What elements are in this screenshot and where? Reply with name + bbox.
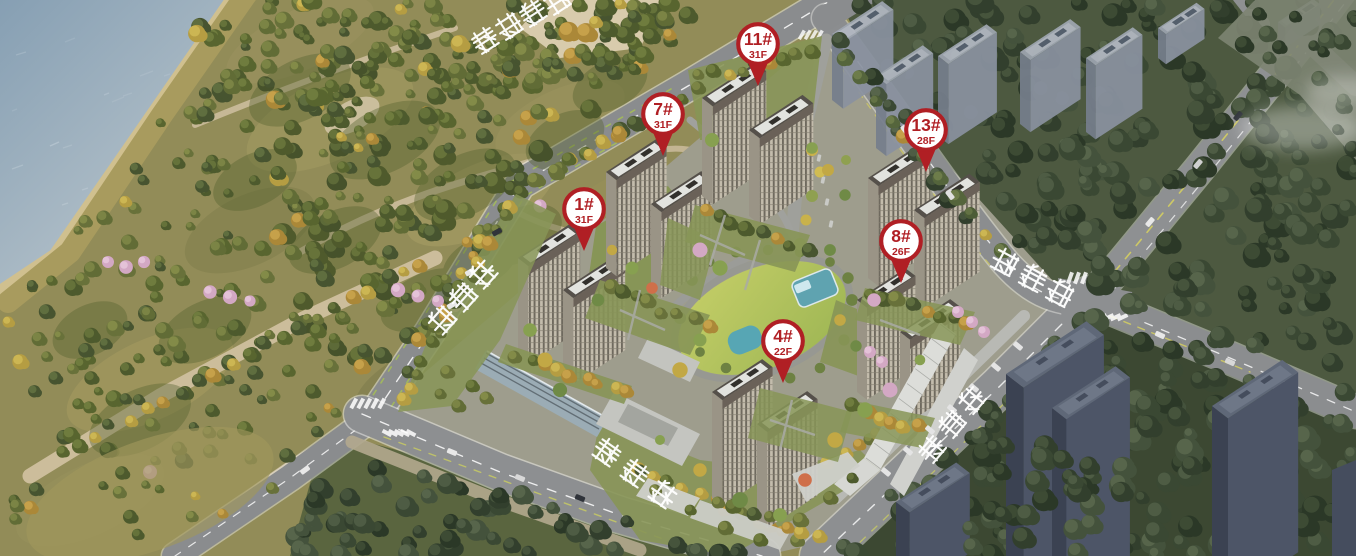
svg-text:26F: 26F xyxy=(892,246,911,258)
svg-text:1#: 1# xyxy=(574,194,594,214)
svg-text:31F: 31F xyxy=(575,214,594,226)
svg-text:31F: 31F xyxy=(654,119,673,131)
svg-text:7#: 7# xyxy=(653,99,673,119)
svg-text:28F: 28F xyxy=(917,135,936,147)
svg-text:4#: 4# xyxy=(773,326,793,346)
svg-text:22F: 22F xyxy=(774,346,793,358)
svg-text:13#: 13# xyxy=(911,115,940,135)
svg-text:11#: 11# xyxy=(744,29,772,49)
svg-text:31F: 31F xyxy=(749,49,768,61)
svg-text:8#: 8# xyxy=(891,226,911,246)
